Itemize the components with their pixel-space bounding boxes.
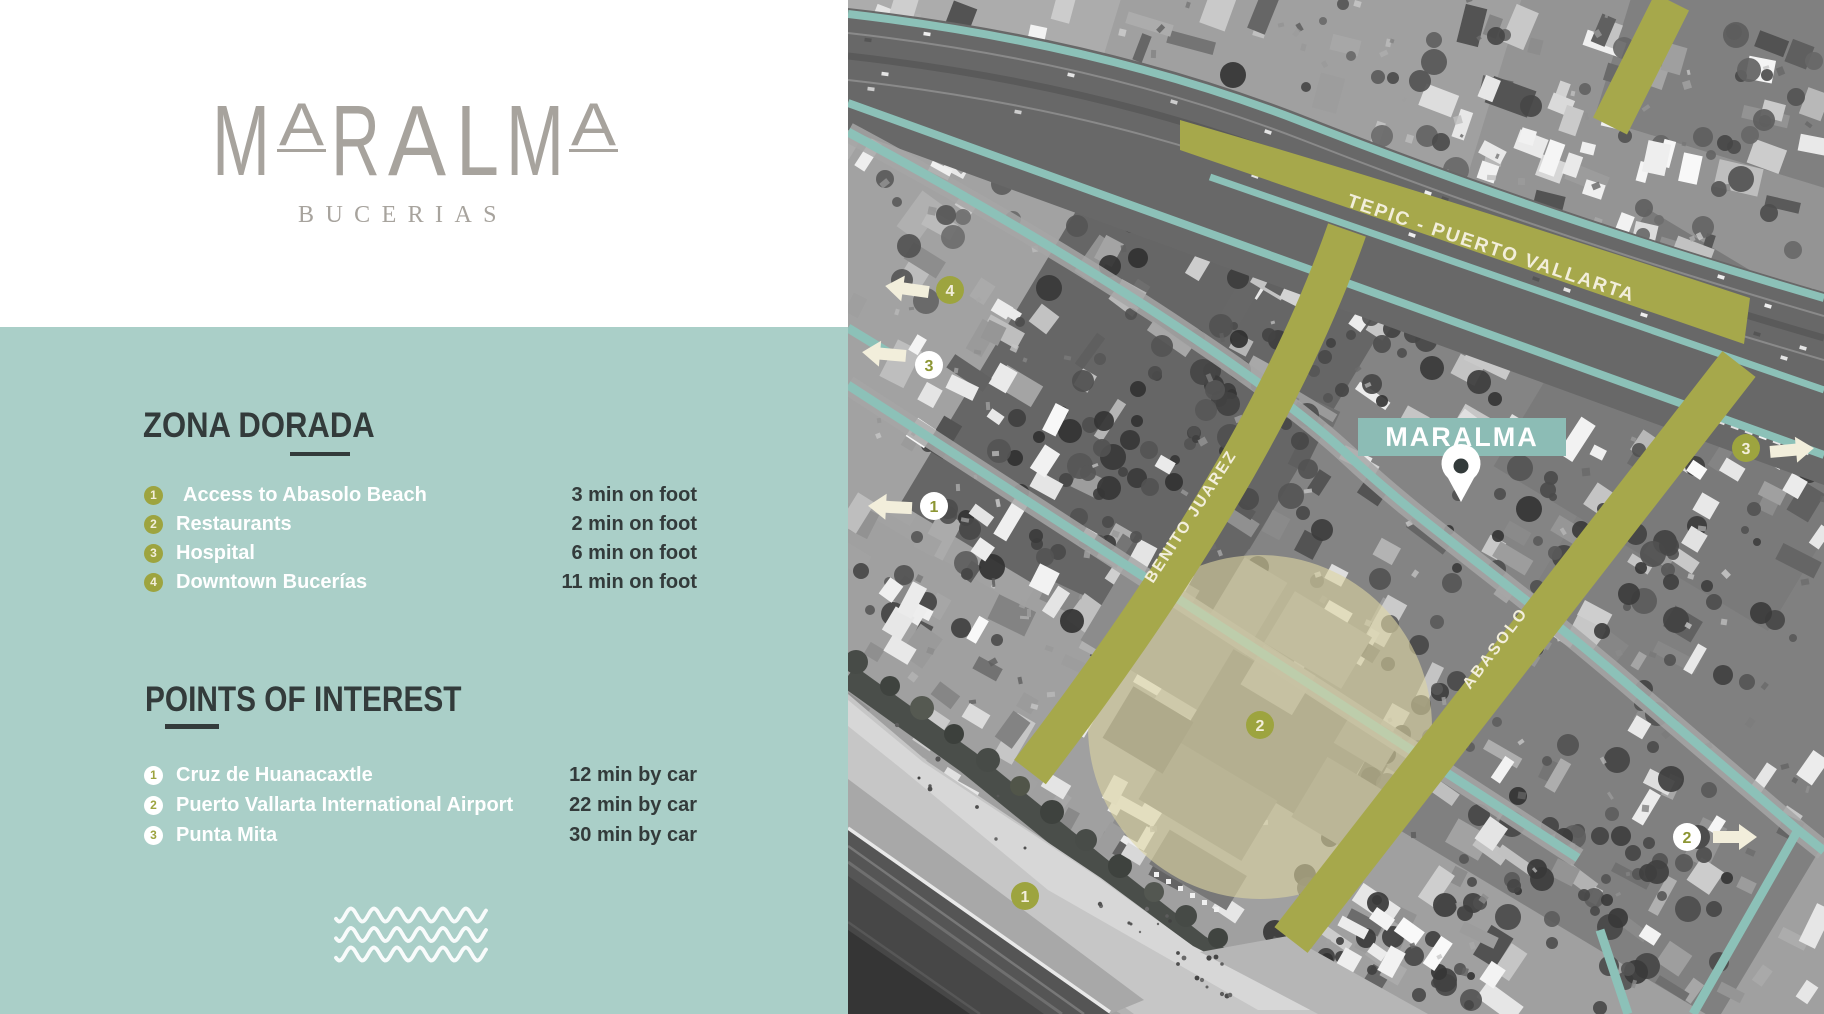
svg-text:1: 1	[930, 499, 939, 516]
svg-text:4: 4	[946, 283, 955, 300]
svg-text:3: 3	[1742, 441, 1751, 458]
svg-text:2: 2	[1683, 830, 1692, 847]
svg-text:2: 2	[1256, 718, 1265, 735]
svg-text:3: 3	[925, 358, 934, 375]
svg-text:1: 1	[1021, 889, 1030, 906]
